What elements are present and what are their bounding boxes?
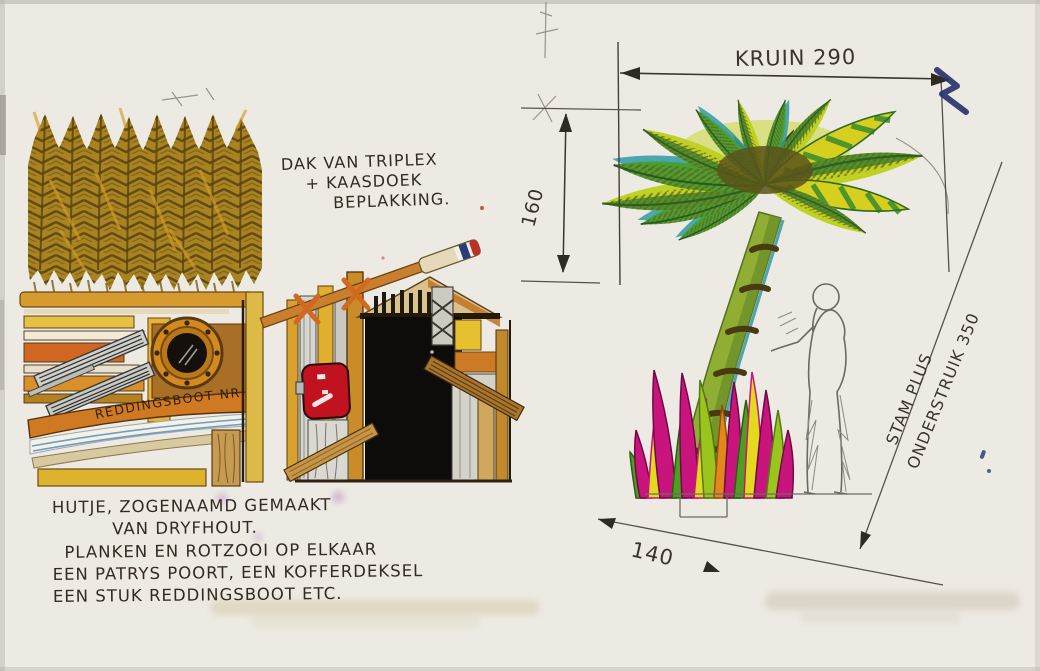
- purple-smudge: [332, 491, 344, 503]
- suitcase-latch: [296, 382, 304, 394]
- pink-speck: [381, 256, 384, 259]
- porthole: [152, 318, 222, 388]
- crown-width-label: KRUIN 290: [735, 45, 857, 71]
- hut-top-beam: [20, 292, 253, 307]
- caption-line3: PLANKEN EN ROTZOOI OP ELKAAR: [64, 540, 377, 562]
- sketch-canvas: REDDINGSBOOT NR 18: [0, 0, 1040, 671]
- hut-trim: [24, 309, 229, 314]
- wood-grain-block: [212, 430, 240, 486]
- paper-edge-mark: [0, 300, 4, 390]
- roof-note-line2: + KAASDOEK: [305, 170, 422, 193]
- paper-edge-mark: [0, 95, 6, 155]
- paper-edge-top: [0, 0, 1040, 4]
- caption-line2: VAN DRYFHOUT.: [112, 518, 258, 539]
- lashing-tower: [432, 287, 453, 345]
- scanned-sketch-page: REDDINGSBOOT NR 18: [0, 0, 1040, 671]
- paper-edge-bottom: [0, 667, 1040, 671]
- caption-line4: EEN PATRYS POORT, EEN KOFFERDEKSEL: [53, 561, 424, 584]
- doorway-speck: [430, 350, 434, 354]
- crown-center-tuft: [717, 146, 813, 194]
- paper-edge-right: [1035, 0, 1040, 671]
- caption-line5: EEN STUK REDDINGSBOOT ETC.: [53, 584, 343, 606]
- tan-plank: [478, 396, 494, 480]
- yellow-panel: [455, 320, 481, 350]
- blue-speck: [987, 469, 991, 473]
- orange-panel: [455, 352, 499, 372]
- hut-bottom-beam: [38, 469, 206, 486]
- suitcase-lid: [302, 363, 351, 419]
- caption-line1: HUTJE, ZOGENAAMD GEMAAKT: [52, 495, 332, 517]
- red-speck: [480, 206, 484, 210]
